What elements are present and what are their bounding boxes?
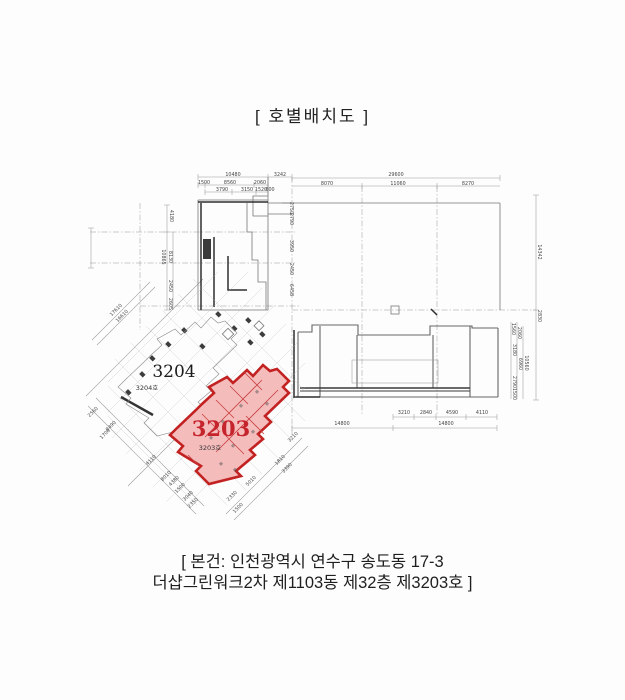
dimension-label: 3390: [281, 462, 294, 475]
dimension-label: 10560: [523, 355, 529, 370]
dimension-label: 2840: [420, 410, 432, 416]
dimension-label: 8560: [224, 180, 236, 186]
dimension-label: 2790: [288, 213, 294, 225]
dimension-label: 1500: [511, 388, 517, 400]
dimension-label: 2450: [167, 280, 173, 292]
dimension-label: 2830: [536, 310, 542, 322]
dimension-label: 1500: [232, 502, 245, 515]
unit-3203-ho-label: 3203호: [199, 444, 222, 452]
unit-3204-ho-label: 3204호: [136, 384, 159, 392]
dimension-label: 3242: [274, 172, 286, 178]
dimension-label: 11060: [390, 181, 405, 187]
unit-3203-label: 3203: [192, 416, 250, 441]
dimension-label: 4590: [446, 410, 458, 416]
building-left-block: [198, 177, 292, 310]
dimension-label: 10865: [160, 249, 166, 264]
dimension-label: 5010: [245, 475, 258, 488]
dimension-label: 4110: [145, 454, 158, 467]
dimension-label: 2060: [254, 180, 266, 186]
dimension-rails: [86, 174, 539, 520]
dimension-label: 4180: [168, 210, 174, 222]
dimension-label: 2330: [226, 490, 239, 503]
caption-line-2: 더샵그린워크2차 제1103동 제32층 제3203호 ]: [0, 573, 625, 594]
dimension-label: 10480: [225, 172, 240, 178]
dimension-label: 1560: [510, 323, 516, 335]
dimension-label: 600: [265, 187, 274, 193]
dimension-label: 2605: [167, 298, 173, 310]
dimension-label: 6458: [288, 284, 294, 296]
subject-property-caption: [ 본건: 인천광역시 연수구 송도동 17-3 더샵그린워크2차 제1103동…: [0, 552, 625, 594]
dimension-label: 8070: [321, 181, 333, 187]
dimension-label: 8130: [167, 251, 173, 263]
dimension-label: 8270: [462, 181, 474, 187]
dimension-label: 2450: [288, 263, 294, 275]
dimension-label: 2060: [516, 327, 522, 339]
dimension-label: 3150: [241, 187, 253, 193]
caption-line-1: [ 본건: 인천광역시 연수구 송도동 17-3: [0, 552, 625, 573]
dimension-label: 3180: [511, 344, 517, 356]
scanned-document-page: [ 호별배치도 ]: [0, 0, 625, 700]
dimension-label: 29600: [388, 172, 403, 178]
dimension-label: 6960: [517, 358, 523, 370]
dimension-label: 3210: [398, 410, 410, 416]
dimension-label: 4110: [476, 410, 488, 416]
dimension-label: 14342: [536, 244, 542, 259]
dimension-label: 3210: [287, 431, 300, 444]
dimension-label: 3950: [288, 240, 294, 252]
dimension-label: 14800: [438, 421, 453, 427]
unit-3204-label: 3204: [152, 362, 195, 382]
floorplan-drawing: 1048032421500856020603790315015206002960…: [0, 0, 625, 700]
dimension-label: 3790: [216, 187, 228, 193]
building-right-block: [282, 203, 500, 398]
dimension-label: 2560: [87, 406, 100, 419]
dimension-label: 1500: [198, 180, 210, 186]
dimension-label: 14800: [334, 421, 349, 427]
dimension-label: 2790: [511, 376, 517, 388]
